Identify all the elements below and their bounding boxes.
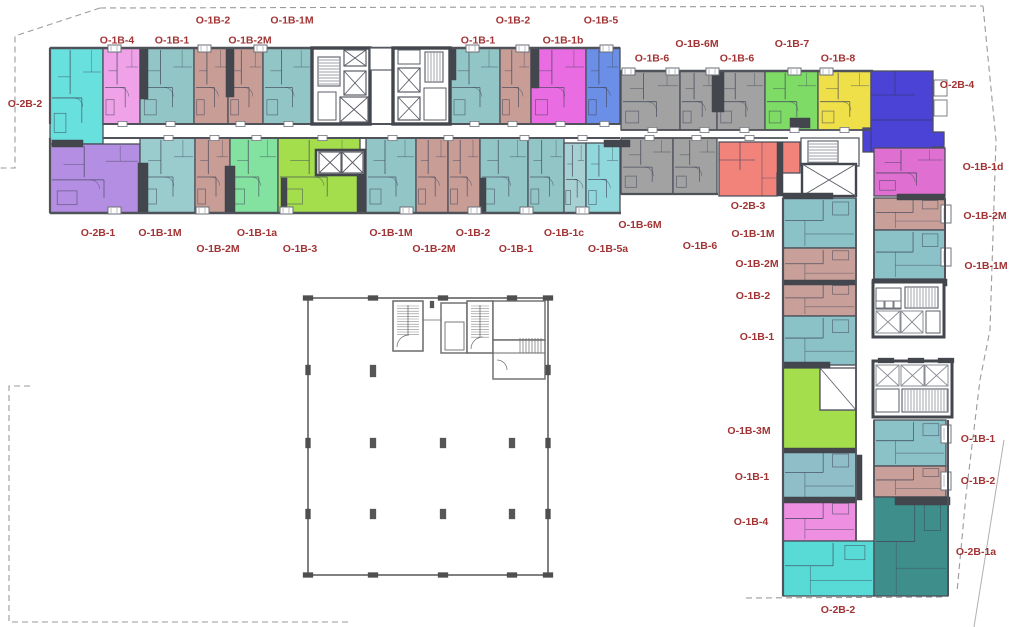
svg-text:O-1B-1: O-1B-1 — [735, 471, 770, 483]
svg-text:O-1B-1M: O-1B-1M — [731, 228, 774, 240]
svg-text:O-1B-1a: O-1B-1a — [237, 227, 277, 239]
svg-text:O-2B-3: O-2B-3 — [731, 200, 766, 212]
svg-text:O-1B-1c: O-1B-1c — [544, 227, 584, 239]
svg-text:O-1B-1M: O-1B-1M — [270, 15, 313, 27]
svg-text:O-1B-2M: O-1B-2M — [735, 258, 778, 270]
svg-text:O-1B-1: O-1B-1 — [740, 331, 775, 343]
svg-text:O-1B-5: O-1B-5 — [584, 15, 619, 27]
svg-text:O-1B-1M: O-1B-1M — [138, 227, 181, 239]
svg-text:O-1B-1: O-1B-1 — [499, 243, 534, 255]
svg-text:O-1B-2M: O-1B-2M — [228, 35, 271, 47]
svg-text:O-2B-2: O-2B-2 — [8, 98, 43, 110]
svg-text:O-1B-3M: O-1B-3M — [727, 425, 770, 437]
svg-text:O-1B-1M: O-1B-1M — [369, 227, 412, 239]
svg-text:O-1B-3: O-1B-3 — [283, 243, 318, 255]
svg-text:O-1B-2M: O-1B-2M — [196, 243, 239, 255]
svg-text:O-1B-2: O-1B-2 — [736, 290, 771, 302]
svg-text:O-1B-1: O-1B-1 — [961, 433, 996, 445]
svg-text:O-1B-6: O-1B-6 — [720, 53, 755, 65]
svg-text:O-1B-6M: O-1B-6M — [675, 38, 718, 50]
svg-text:O-1B-2M: O-1B-2M — [963, 210, 1006, 222]
svg-text:O-2B-4: O-2B-4 — [940, 79, 975, 91]
svg-text:O-1B-6M: O-1B-6M — [618, 219, 661, 231]
svg-text:O-1B-2: O-1B-2 — [196, 15, 231, 27]
svg-text:O-1B-6: O-1B-6 — [683, 240, 718, 252]
svg-text:O-1B-2: O-1B-2 — [456, 227, 491, 239]
svg-text:O-1B-1M: O-1B-1M — [964, 260, 1007, 272]
svg-text:O-1B-8: O-1B-8 — [821, 53, 856, 65]
svg-text:O-2B-1: O-2B-1 — [81, 227, 116, 239]
svg-text:O-1B-5a: O-1B-5a — [588, 243, 628, 255]
svg-text:O-2B-1a: O-2B-1a — [956, 546, 996, 558]
svg-text:O-1B-4: O-1B-4 — [100, 35, 135, 47]
svg-text:O-1B-2: O-1B-2 — [961, 475, 996, 487]
svg-text:O-1B-2: O-1B-2 — [496, 15, 531, 27]
svg-text:O-1B-1: O-1B-1 — [461, 35, 496, 47]
svg-text:O-2B-2: O-2B-2 — [821, 604, 856, 616]
svg-text:O-1B-1b: O-1B-1b — [543, 35, 584, 47]
svg-text:O-1B-6: O-1B-6 — [635, 53, 670, 65]
svg-text:O-1B-7: O-1B-7 — [775, 38, 810, 50]
svg-text:O-1B-1: O-1B-1 — [155, 35, 190, 47]
svg-text:O-1B-4: O-1B-4 — [734, 516, 769, 528]
svg-text:O-1B-2M: O-1B-2M — [412, 243, 455, 255]
svg-text:O-1B-1d: O-1B-1d — [963, 161, 1004, 173]
